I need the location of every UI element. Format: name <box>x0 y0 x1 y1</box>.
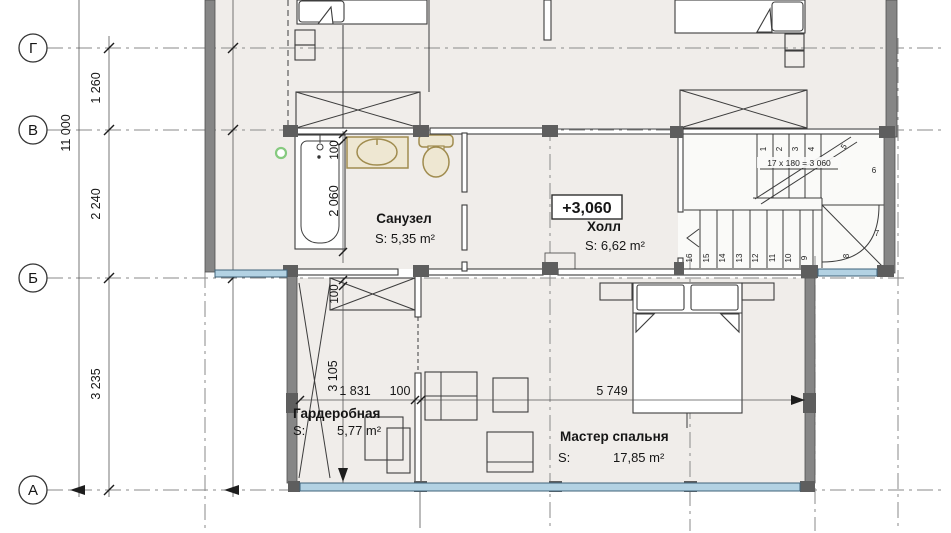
tread-13: 13 <box>735 253 744 262</box>
drain-icon <box>317 155 320 158</box>
pillow-master-right <box>691 285 738 310</box>
dim-bedroom-width: 5 749 <box>596 384 627 398</box>
terrace-fill <box>215 0 288 270</box>
axis-label-g: Г <box>29 40 37 57</box>
axis-label-b: Б <box>28 270 38 287</box>
axis-bubbles: Г В Б А <box>19 34 47 504</box>
tread-9: 9 <box>800 255 809 260</box>
tread-16: 16 <box>685 253 694 262</box>
bathroom-wall-right-2 <box>462 205 467 250</box>
tread-4: 4 <box>807 146 816 151</box>
dim-wall-thickness: 100 <box>390 384 411 398</box>
stair-formula: 17 x 180 = 3 060 <box>767 158 831 168</box>
wall-left-upper <box>205 0 215 272</box>
wall-left-lower <box>287 272 297 483</box>
bathroom-wall-right-3 <box>462 262 467 271</box>
hall-stairs-wall-1 <box>678 134 683 212</box>
dim-b-a: 3 235 <box>89 368 103 399</box>
tread-11: 11 <box>768 253 777 262</box>
tread-15: 15 <box>702 253 711 262</box>
dim-wardrobe-depth: 3 105 <box>326 360 340 391</box>
master-name: Мастер спальня <box>560 429 669 444</box>
pillow-master-left <box>637 285 684 310</box>
floor-plan-drawing: Г В Б А 11 000 1 260 2 240 3 235 <box>0 0 951 533</box>
master-area: 17,85 m² <box>613 450 665 465</box>
master-area-prefix: S: <box>558 450 570 465</box>
tread-7: 7 <box>875 229 880 238</box>
wall-right-bedroom <box>805 278 815 483</box>
hall-name: Холл <box>587 219 621 234</box>
dim-g-v: 1 260 <box>89 72 103 103</box>
tread-8: 8 <box>842 253 851 258</box>
dim-tub-offset: 100 <box>329 140 341 159</box>
axis-label-v: В <box>28 122 38 139</box>
bathroom-wall-right-1 <box>462 133 467 192</box>
upper-partition-wall <box>544 0 551 40</box>
wardrobe-area: 5,77 m² <box>337 423 382 438</box>
wall-right-stairs <box>884 137 895 273</box>
pillow-upper-right <box>772 2 803 31</box>
floor-plan-page: Г В Б А 11 000 1 260 2 240 3 235 <box>0 0 951 533</box>
wardrobe-wall-right-1 <box>415 275 421 317</box>
marker-green-circle <box>276 148 286 158</box>
stairs-fill <box>678 134 886 271</box>
hall-area: S: 6,62 m² <box>585 238 646 253</box>
tread-6: 6 <box>872 166 877 175</box>
tread-12: 12 <box>751 253 760 262</box>
elevation-value: +3,060 <box>562 200 611 217</box>
wardrobe-wall-right-2 <box>415 373 421 483</box>
left-dimension-texts: 11 000 1 260 2 240 3 235 <box>59 72 103 399</box>
window-band-south <box>300 483 800 491</box>
window-terrace <box>215 270 287 277</box>
dim-wardrobe-offset: 100 <box>329 284 341 303</box>
wardrobe-name: Гардеробная <box>293 406 380 421</box>
window-stairs <box>818 269 877 276</box>
wall-right-upper <box>886 0 897 137</box>
tread-2: 2 <box>775 146 784 151</box>
tread-10: 10 <box>784 253 793 262</box>
dim-arrow-a1 <box>70 485 85 495</box>
wardrobe-area-prefix: S: <box>293 423 305 438</box>
dim-arrow-a2 <box>224 485 239 495</box>
dim-v-b: 2 240 <box>89 188 103 219</box>
bathroom-area: S: 5,35 m² <box>375 231 436 246</box>
sink <box>347 137 408 168</box>
tread-1: 1 <box>759 146 768 151</box>
axis-label-a: А <box>28 482 38 499</box>
dim-tub-length: 2 060 <box>327 185 341 216</box>
tread-14: 14 <box>718 253 727 262</box>
dim-wardrobe-width: 1 831 <box>339 384 370 398</box>
tread-3: 3 <box>791 146 800 151</box>
bathroom-name: Санузел <box>376 211 432 226</box>
dim-overall: 11 000 <box>59 114 73 151</box>
